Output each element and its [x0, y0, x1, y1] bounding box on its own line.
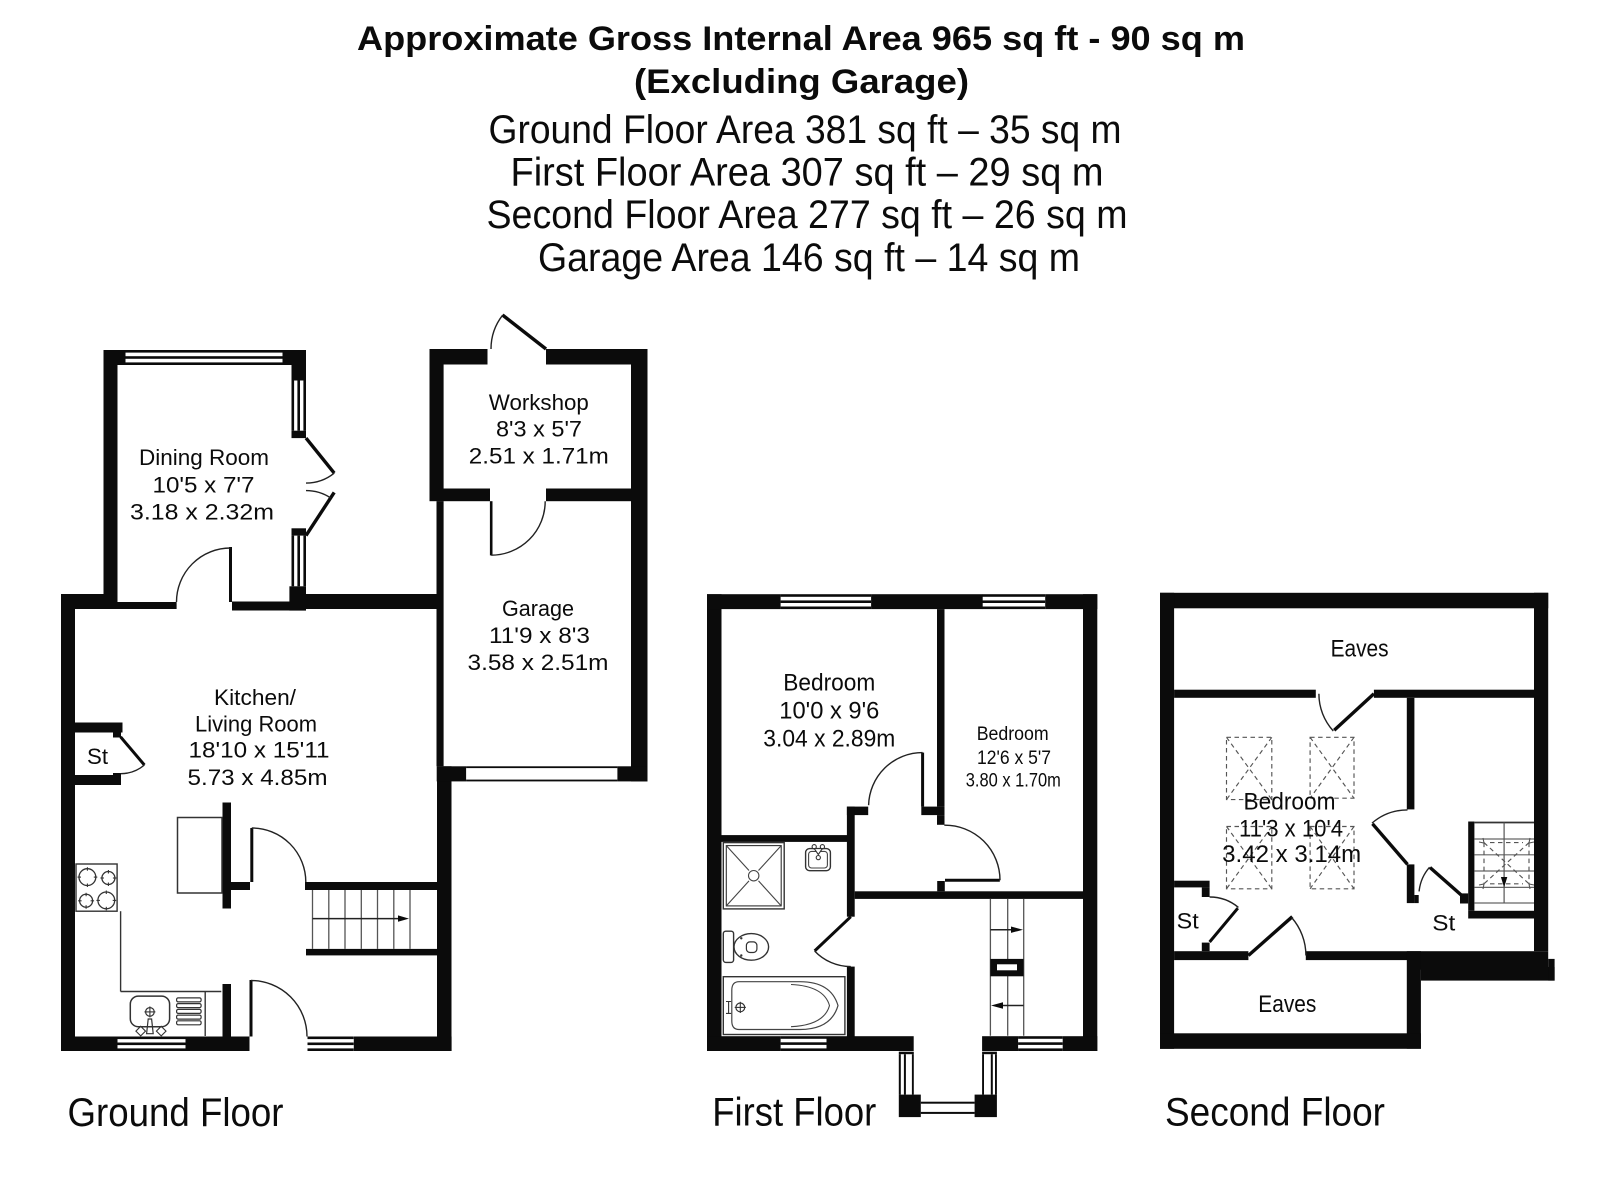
svg-text:Dining Room: Dining Room — [139, 445, 269, 470]
svg-text:First Floor: First Floor — [712, 1090, 876, 1134]
svg-text:Living Room: Living Room — [195, 712, 317, 737]
svg-text:3.42 x 3.14m: 3.42 x 3.14m — [1222, 841, 1361, 868]
svg-text:Ground Floor Area 381 sq ft –: Ground Floor Area 381 sq ft – 35 sq m — [489, 108, 1122, 152]
svg-text:Eaves: Eaves — [1331, 636, 1389, 663]
svg-text:(Excluding Garage): (Excluding Garage) — [634, 63, 969, 101]
svg-text:11'9 x 8'3: 11'9 x 8'3 — [489, 623, 590, 648]
svg-text:2.51 x 1.71m: 2.51 x 1.71m — [469, 444, 609, 469]
svg-text:8'3 x 5'7: 8'3 x 5'7 — [496, 417, 582, 442]
svg-text:Bedroom: Bedroom — [783, 670, 875, 697]
svg-text:Eaves: Eaves — [1258, 991, 1316, 1018]
svg-text:3.04 x 2.89m: 3.04 x 2.89m — [763, 726, 895, 753]
svg-text:First Floor Area 307 sq ft – 2: First Floor Area 307 sq ft – 29 sq m — [511, 151, 1104, 195]
svg-text:St: St — [1432, 911, 1456, 936]
svg-text:Bedroom: Bedroom — [977, 724, 1049, 745]
svg-text:10'0 x 9'6: 10'0 x 9'6 — [779, 698, 879, 725]
svg-text:5.73 x 4.85m: 5.73 x 4.85m — [188, 765, 328, 790]
svg-text:Workshop: Workshop — [489, 390, 589, 415]
svg-text:Bedroom: Bedroom — [1244, 789, 1336, 816]
svg-text:3.80 x 1.70m: 3.80 x 1.70m — [966, 771, 1061, 792]
svg-text:10'5 x 7'7: 10'5 x 7'7 — [153, 473, 255, 498]
svg-text:Kitchen/: Kitchen/ — [214, 685, 297, 710]
svg-text:St: St — [87, 744, 109, 769]
svg-text:18'10 x 15'11: 18'10 x 15'11 — [189, 738, 330, 763]
svg-text:3.18 x 2.32m: 3.18 x 2.32m — [130, 500, 274, 525]
svg-text:11'3 x 10'4: 11'3 x 10'4 — [1239, 815, 1343, 842]
svg-text:St: St — [1177, 909, 1200, 934]
svg-text:Second Floor Area 277 sq ft –: Second Floor Area 277 sq ft – 26 sq m — [487, 193, 1128, 237]
svg-text:Approximate Gross Internal Are: Approximate Gross Internal Area 965 sq f… — [357, 20, 1245, 58]
svg-text:12'6 x 5'7: 12'6 x 5'7 — [977, 748, 1051, 769]
svg-text:Garage Area 146 sq ft – 14 sq: Garage Area 146 sq ft – 14 sq m — [538, 236, 1080, 280]
svg-text:Second Floor: Second Floor — [1165, 1090, 1385, 1134]
svg-text:Garage: Garage — [502, 596, 574, 621]
svg-text:Ground Floor: Ground Floor — [68, 1091, 284, 1135]
svg-text:3.58 x 2.51m: 3.58 x 2.51m — [468, 650, 609, 675]
